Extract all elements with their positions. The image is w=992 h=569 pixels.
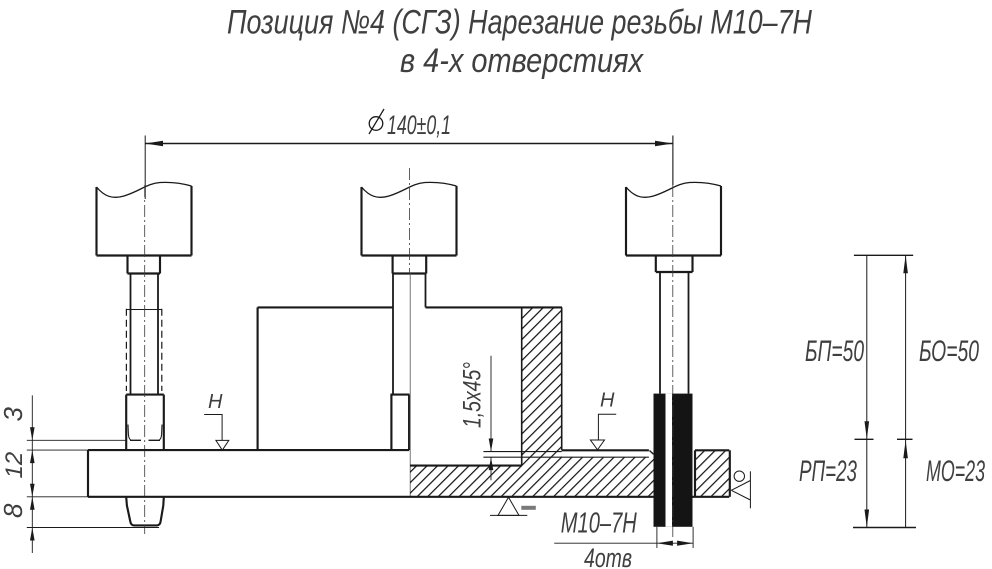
svg-text:H: H [600, 390, 615, 412]
svg-text:4отв: 4отв [584, 543, 632, 569]
svg-text:3: 3 [0, 407, 28, 422]
svg-text:БО=50: БО=50 [919, 335, 979, 368]
svg-text:140±0,1: 140±0,1 [387, 110, 451, 140]
svg-text:БП=50: БП=50 [805, 335, 864, 368]
svg-text:Позиция №4 (СГЗ) Нарезание рез: Позиция №4 (СГЗ) Нарезание резьбы М10–7Н [227, 4, 812, 42]
svg-text:8: 8 [0, 503, 28, 518]
svg-text:МО=23: МО=23 [926, 455, 985, 488]
svg-text:12: 12 [1, 452, 28, 479]
svg-text:1,5х45°: 1,5х45° [459, 362, 487, 428]
svg-text:H: H [208, 391, 223, 413]
svg-text:в 4-х отверстиях: в 4-х отверстиях [400, 42, 644, 80]
svg-text:М10–7Н: М10–7Н [561, 508, 637, 540]
svg-text:РП=23: РП=23 [799, 455, 857, 488]
